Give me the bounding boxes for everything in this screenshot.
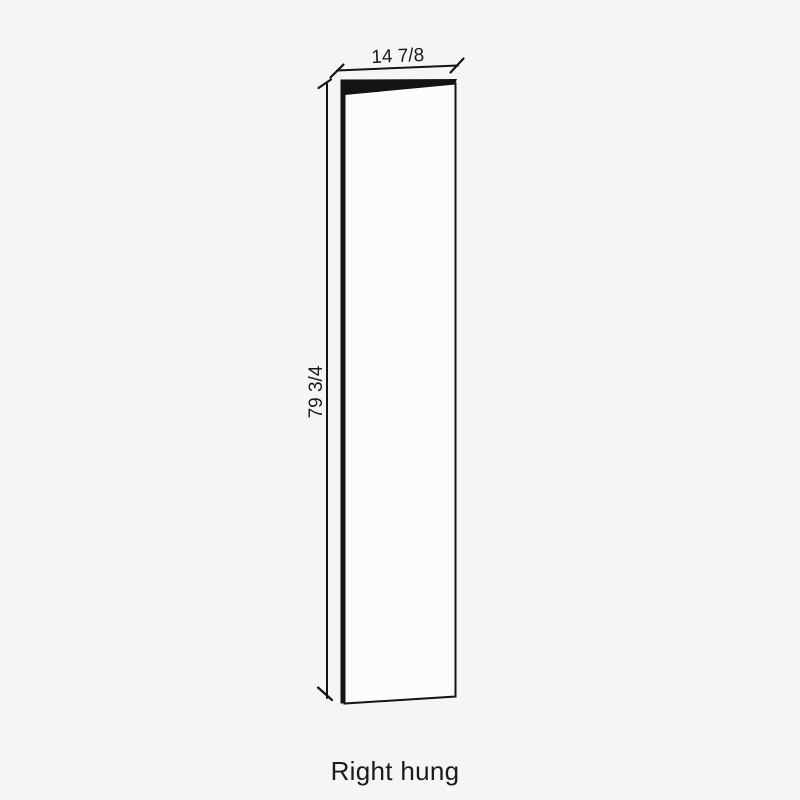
width-dimension-label: 14 7/8 — [371, 45, 425, 68]
door-face — [345, 84, 456, 704]
door-diagram-svg: 14 7/8 79 3/4 Right hung — [0, 0, 800, 800]
height-dimension-tick-top — [319, 80, 332, 89]
diagram-caption: Right hung — [331, 756, 460, 786]
door — [341, 79, 458, 704]
door-swing-diagram: 14 7/8 79 3/4 Right hung — [0, 0, 800, 800]
height-dimension-tick-bottom — [318, 688, 332, 701]
height-dimension-label: 79 3/4 — [306, 365, 327, 418]
door-free-edge-thick — [341, 80, 345, 704]
